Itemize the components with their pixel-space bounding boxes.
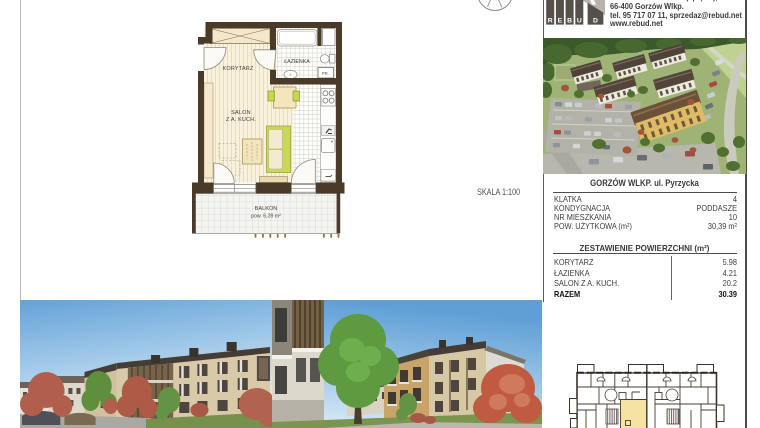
svg-text:D: D: [593, 17, 598, 24]
svg-text:SALON: SALON: [231, 110, 251, 116]
svg-text:B: B: [567, 17, 572, 24]
svg-text:ŁAZIENKA: ŁAZIENKA: [284, 59, 310, 65]
svg-text:R: R: [548, 17, 553, 24]
svg-text:KORYTARZ: KORYTARZ: [222, 66, 253, 72]
svg-text:BALKON: BALKON: [255, 206, 278, 212]
svg-text:E: E: [558, 17, 563, 24]
svg-text:pow. 6,39 m²: pow. 6,39 m²: [251, 214, 281, 220]
svg-text:Z A. KUCH.: Z A. KUCH.: [226, 117, 256, 123]
svg-text:U: U: [577, 17, 582, 24]
svg-text:PR.: PR.: [322, 71, 329, 76]
